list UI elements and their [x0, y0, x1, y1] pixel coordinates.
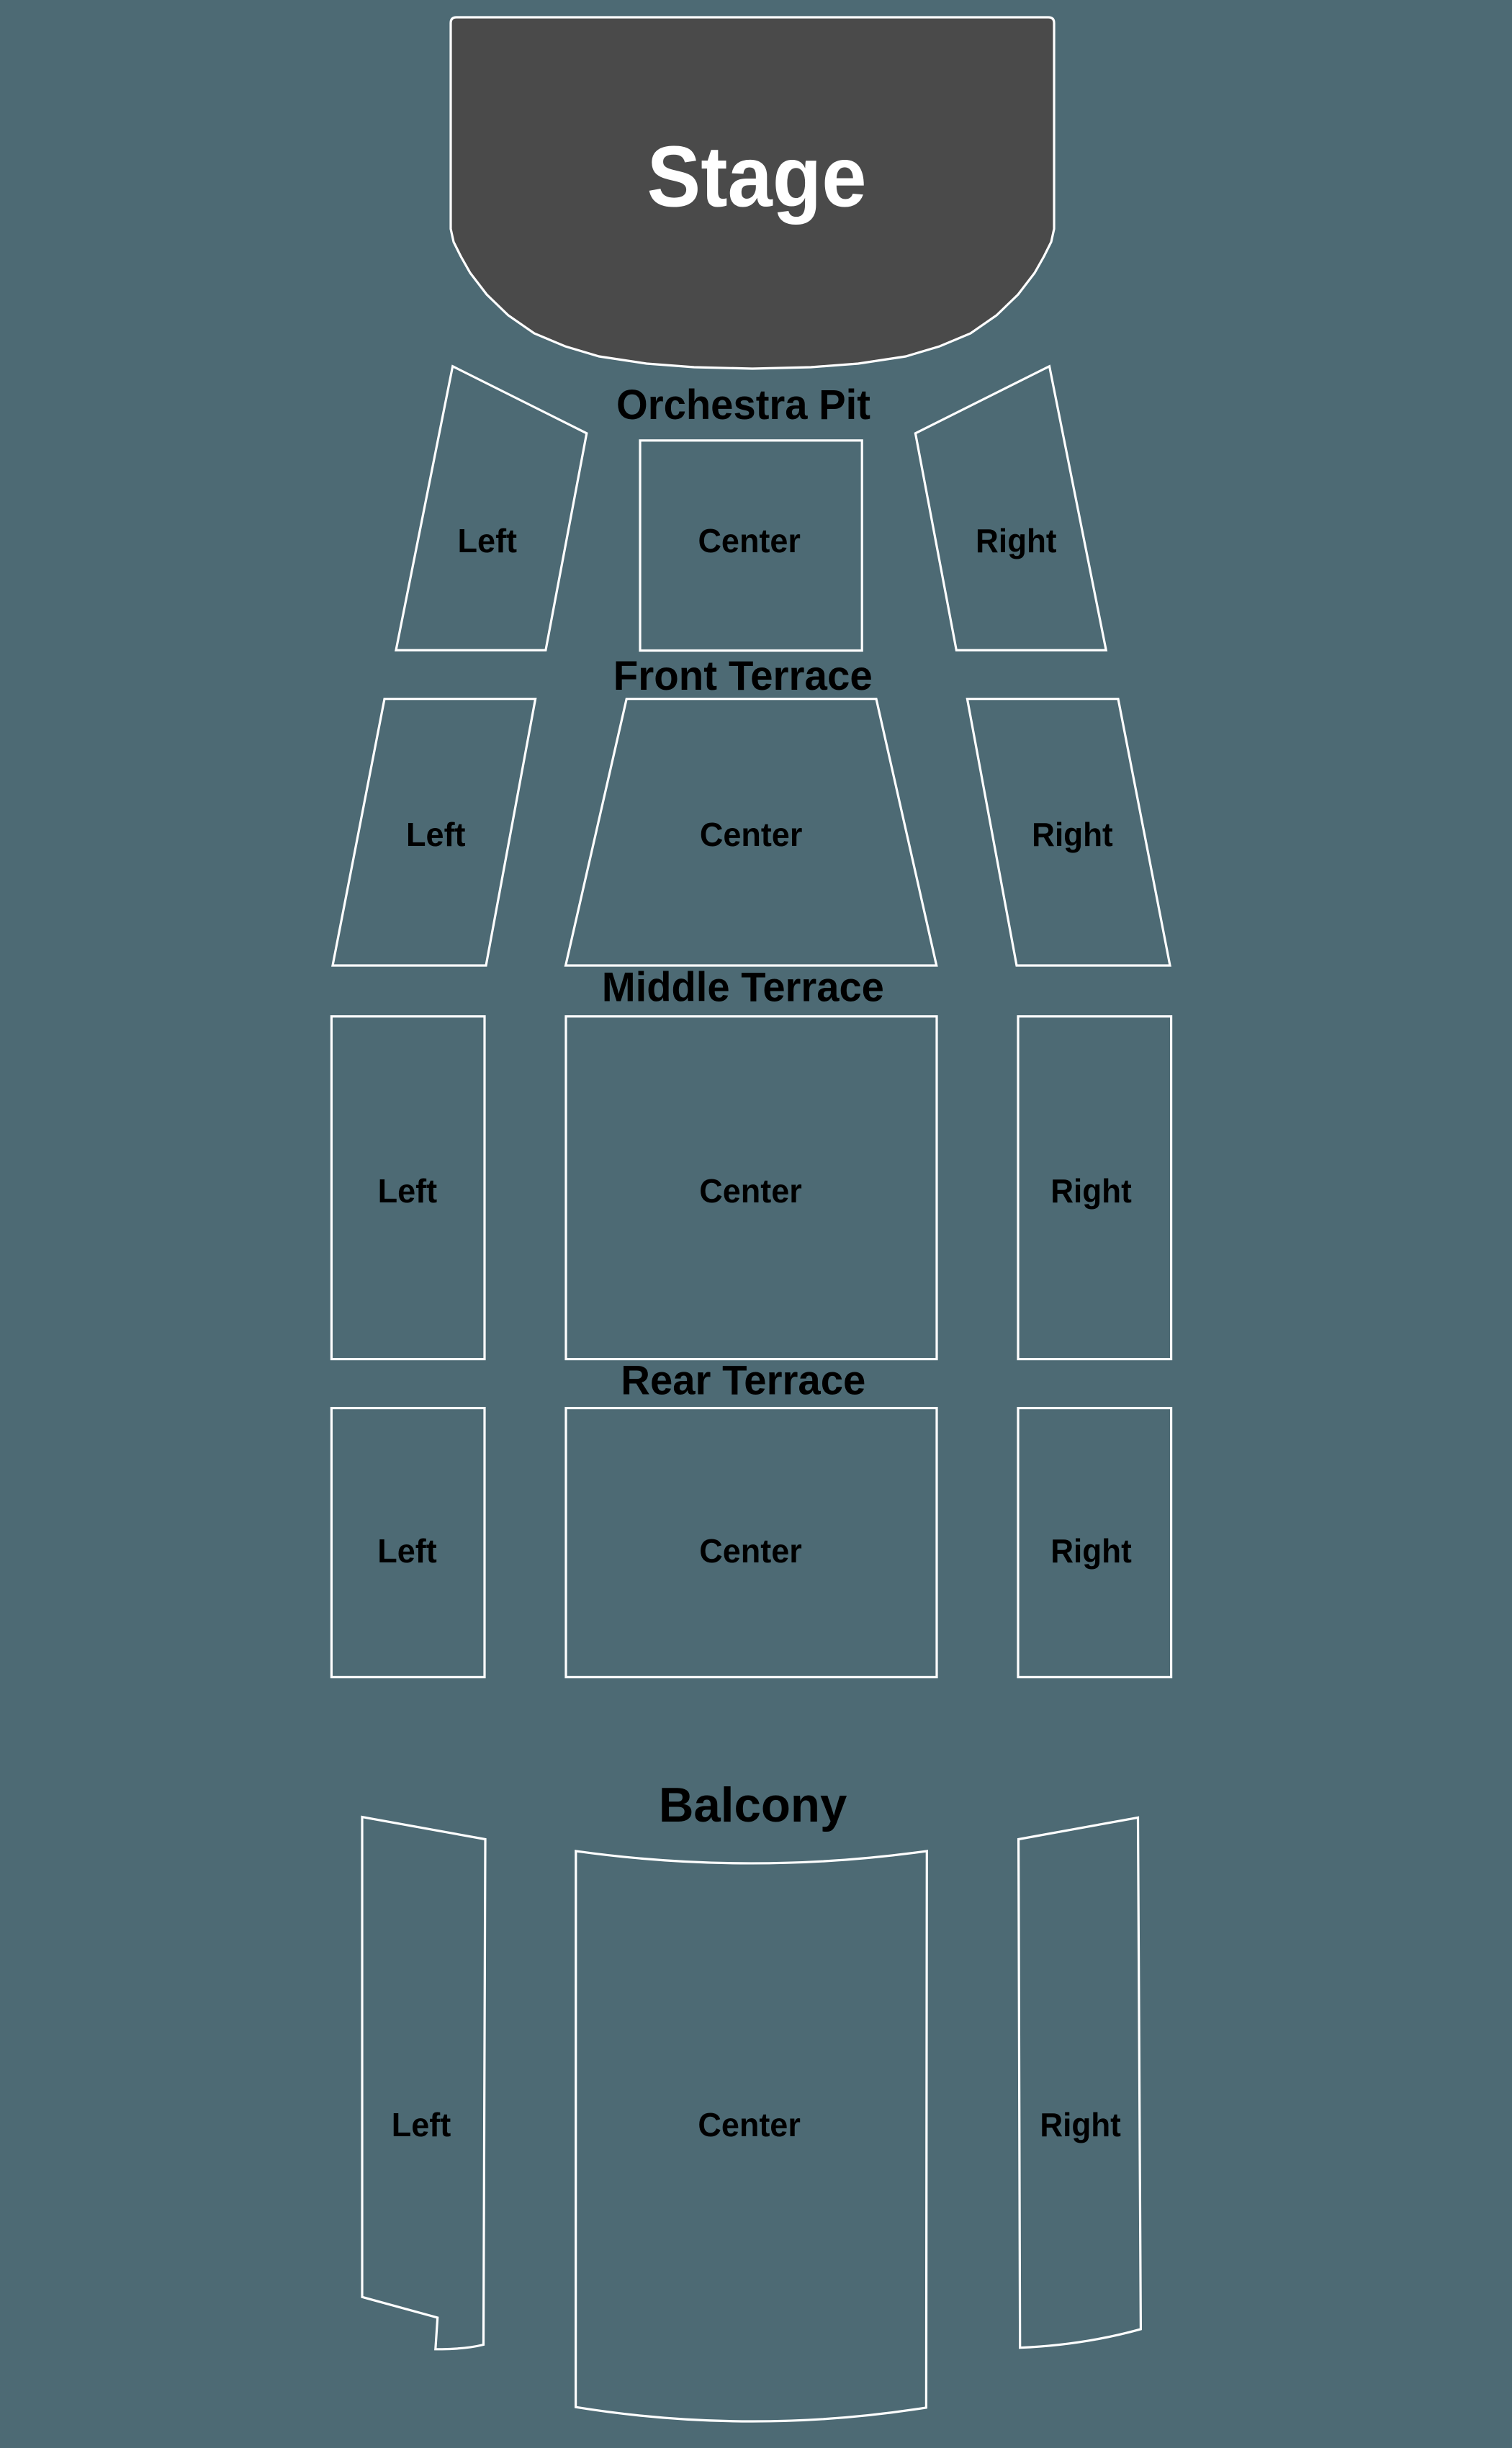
svg-text:Front Terrace: Front Terrace: [613, 653, 873, 699]
svg-text:Left: Left: [378, 1172, 438, 1210]
svg-text:Center: Center: [699, 1532, 802, 1570]
svg-text:Middle Terrace: Middle Terrace: [602, 964, 884, 1010]
svg-text:Left: Left: [377, 1532, 437, 1570]
svg-text:Stage: Stage: [647, 129, 867, 225]
svg-text:Balcony: Balcony: [659, 1778, 847, 1832]
svg-text:Right: Right: [1050, 1532, 1132, 1570]
svg-text:Rear Terrace: Rear Terrace: [621, 1358, 865, 1404]
svg-text:Right: Right: [1050, 1172, 1132, 1210]
svg-text:Right: Right: [976, 522, 1057, 559]
svg-text:Left: Left: [458, 522, 518, 559]
svg-text:Center: Center: [698, 522, 801, 559]
svg-text:Left: Left: [406, 816, 466, 853]
svg-text:Right: Right: [1032, 816, 1113, 853]
svg-text:Center: Center: [700, 816, 803, 853]
svg-text:Center: Center: [699, 1172, 802, 1210]
svg-text:Orchestra Pit: Orchestra Pit: [616, 382, 870, 428]
svg-text:Left: Left: [392, 2106, 451, 2143]
svg-text:Center: Center: [698, 2106, 801, 2143]
svg-text:Right: Right: [1040, 2106, 1121, 2143]
